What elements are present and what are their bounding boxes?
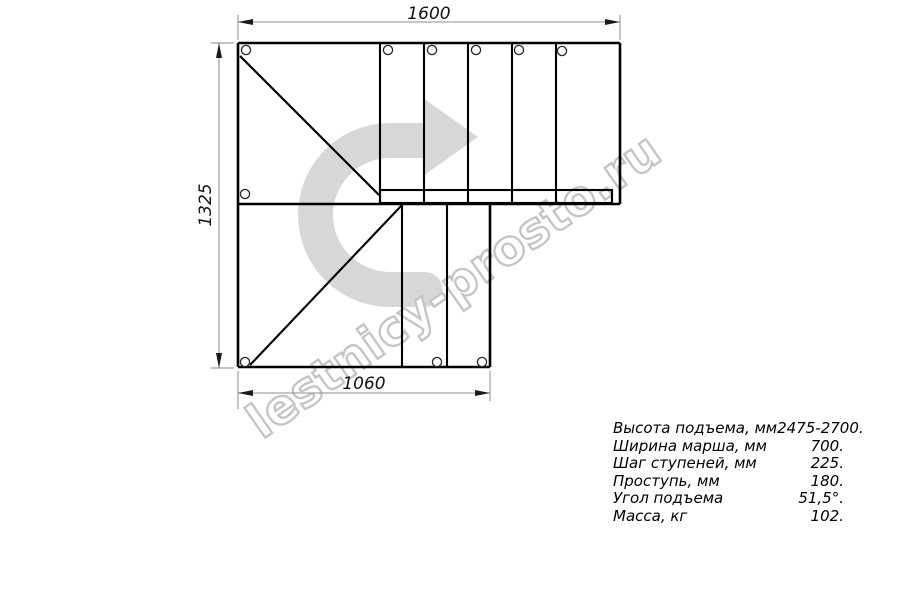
spec-row: Высота подъема, мм 2475-2700. <box>613 420 844 438</box>
mounting-hole-icon <box>240 189 249 198</box>
dim-label-left: 1325 <box>196 183 216 226</box>
spec-label: Проступь, мм <box>613 473 720 491</box>
dim-arrow-icon <box>475 390 490 396</box>
spec-value: 180. <box>811 473 844 491</box>
dim-label-bottom: 1060 <box>342 374 385 394</box>
spec-value: 700. <box>811 438 844 456</box>
spec-label: Масса, кг <box>613 508 687 526</box>
dim-arrow-icon <box>216 353 222 368</box>
mounting-hole-icon <box>240 357 249 366</box>
mounting-hole-icon <box>557 46 566 55</box>
spec-label: Ширина марша, мм <box>613 438 767 456</box>
spec-row: Шаг ступеней, мм 225. <box>613 455 844 473</box>
spec-row: Масса, кг 102. <box>613 508 844 526</box>
spec-row: Угол подъема 51,5°. <box>613 490 844 508</box>
spec-value: 225. <box>811 455 844 473</box>
dim-arrow-icon <box>238 19 253 25</box>
spec-label: Шаг ступеней, мм <box>613 455 757 473</box>
page: lestnicy-prosto.ru <box>0 0 900 600</box>
mounting-hole-icon <box>432 357 441 366</box>
spec-label: Угол подъема <box>613 490 723 508</box>
spec-table: Высота подъема, мм 2475-2700. Ширина мар… <box>613 420 844 526</box>
dim-label-top: 1600 <box>407 4 450 24</box>
mounting-hole-icon <box>471 45 480 54</box>
spec-value: 51,5°. <box>798 490 844 508</box>
mounting-hole-icon <box>383 45 392 54</box>
dim-arrow-icon <box>605 19 620 25</box>
direction-arrow-shaft <box>316 141 425 290</box>
dim-arrow-icon <box>238 390 253 396</box>
mounting-hole-icon <box>477 357 486 366</box>
spec-value: 102. <box>811 508 844 526</box>
spec-row: Ширина марша, мм 700. <box>613 438 844 456</box>
mounting-hole-icon <box>427 45 436 54</box>
mounting-hole-icon <box>241 45 250 54</box>
watermark-text: lestnicy-prosto.ru <box>237 122 672 450</box>
spec-value: 2475-2700. <box>777 420 864 438</box>
mounting-hole-icon <box>514 45 523 54</box>
spec-row: Проступь, мм 180. <box>613 473 844 491</box>
direction-arrow-head <box>423 98 478 176</box>
dim-arrow-icon <box>216 43 222 58</box>
spec-label: Высота подъема, мм <box>613 420 777 438</box>
